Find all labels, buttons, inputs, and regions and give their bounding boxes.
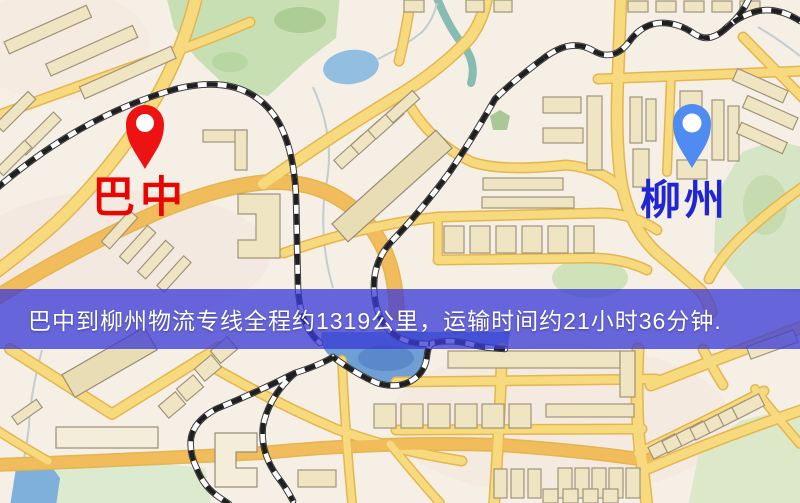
origin-label: 巴中	[92, 177, 188, 220]
destination-label: 柳州	[640, 180, 728, 221]
destination-pin-icon[interactable]	[666, 98, 718, 174]
map-canvas[interactable]	[0, 0, 800, 503]
info-banner-text: 巴中到柳州物流专线全程约1319公里，运输时间约21小时36分钟.	[28, 302, 722, 336]
info-banner: 巴中到柳州物流专线全程约1319公里，运输时间约21小时36分钟.	[0, 289, 800, 349]
origin-pin-icon[interactable]	[119, 99, 171, 175]
map-view[interactable]: 巴中 柳州 巴中到柳州物流专线全程约1319公里，运输时间约21小时36分钟.	[0, 0, 800, 503]
